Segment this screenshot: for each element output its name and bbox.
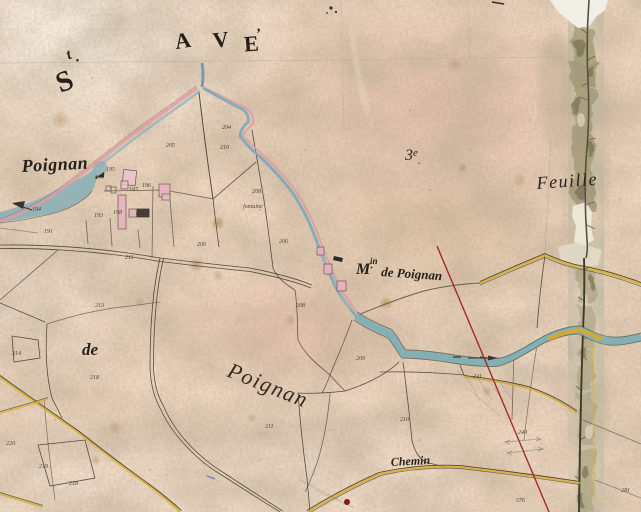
svg-text:208: 208 (252, 189, 261, 195)
svg-text:210: 210 (400, 417, 409, 423)
svg-text:211: 211 (265, 424, 274, 430)
svg-text:’: ’ (256, 26, 261, 42)
svg-text:200: 200 (197, 242, 206, 248)
svg-text:Chemin: Chemin (390, 453, 430, 469)
svg-text:193: 193 (94, 213, 103, 219)
svg-text:195: 195 (106, 167, 115, 173)
svg-text:206: 206 (279, 239, 288, 245)
svg-text:281: 281 (621, 488, 630, 494)
svg-text:240: 240 (518, 429, 527, 436)
svg-text:219: 219 (39, 464, 48, 470)
svg-text:218: 218 (69, 481, 78, 487)
svg-text:Poignan: Poignan (20, 153, 88, 177)
svg-text:M: M (355, 261, 371, 278)
svg-text:209: 209 (356, 356, 365, 362)
svg-text:208: 208 (296, 303, 305, 309)
svg-text:576: 576 (516, 498, 525, 504)
svg-text:in: in (370, 256, 378, 266)
svg-text:205: 205 (166, 143, 175, 149)
svg-text:199: 199 (135, 211, 144, 217)
svg-text:218: 218 (90, 375, 99, 381)
svg-text:211: 211 (125, 255, 134, 261)
svg-text:fontaine: fontaine (243, 203, 263, 210)
svg-text:194: 194 (32, 206, 41, 213)
svg-text:220: 220 (6, 441, 15, 447)
svg-text:194: 194 (95, 174, 104, 181)
svg-text:214: 214 (12, 350, 21, 357)
svg-text:241: 241 (473, 373, 482, 380)
svg-text:197: 197 (129, 187, 139, 193)
svg-text:204: 204 (222, 124, 231, 131)
svg-text:V: V (212, 26, 231, 53)
svg-text:198: 198 (113, 210, 122, 216)
svg-text:213: 213 (95, 303, 104, 309)
svg-text:196: 196 (142, 183, 151, 189)
svg-text:210: 210 (220, 145, 229, 151)
svg-text:191: 191 (44, 229, 53, 235)
svg-text:de: de (82, 340, 99, 359)
